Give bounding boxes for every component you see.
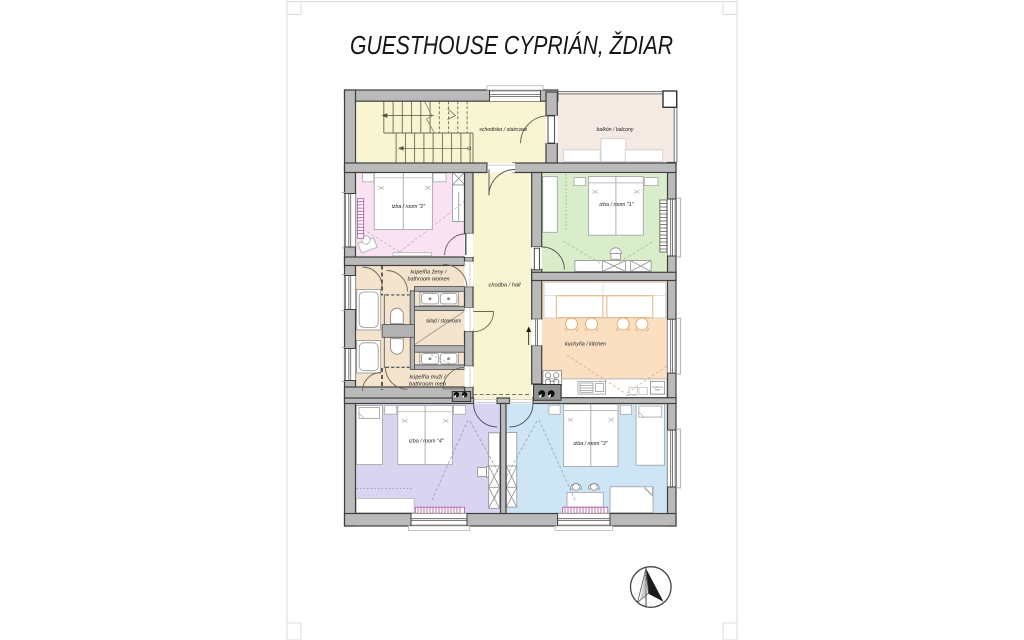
svg-text:bathroom men: bathroom men	[409, 382, 446, 388]
svg-text:drez / sink: drez / sink	[626, 395, 637, 397]
svg-text:izba / room "3": izba / room "3"	[574, 441, 609, 447]
svg-text:kúpeľňa ženy /: kúpeľňa ženy /	[411, 270, 448, 276]
svg-text:fridge: fridge	[655, 390, 661, 392]
svg-text:bathroom women: bathroom women	[408, 277, 450, 283]
svg-text:kúpeľňa muži /: kúpeľňa muži /	[410, 375, 447, 381]
svg-text:schodisko / staircase: schodisko / staircase	[479, 127, 527, 133]
svg-text:cooker: cooker	[549, 381, 556, 383]
svg-text:izba / room "4": izba / room "4"	[409, 439, 445, 445]
svg-text:balkón / balcony: balkón / balcony	[597, 127, 635, 133]
svg-text:GUESTHOUSE CYPRIÁN, ŽDIAR: GUESTHOUSE CYPRIÁN, ŽDIAR	[350, 30, 673, 60]
svg-text:sklad / storeroom: sklad / storeroom	[426, 319, 462, 325]
svg-text:izba / room "1": izba / room "1"	[599, 202, 634, 208]
svg-text:kuchyňa / kitchen: kuchyňa / kitchen	[565, 342, 606, 348]
svg-text:chodba / hall: chodba / hall	[489, 283, 522, 289]
svg-text:izba / room "2": izba / room "2"	[392, 204, 426, 210]
